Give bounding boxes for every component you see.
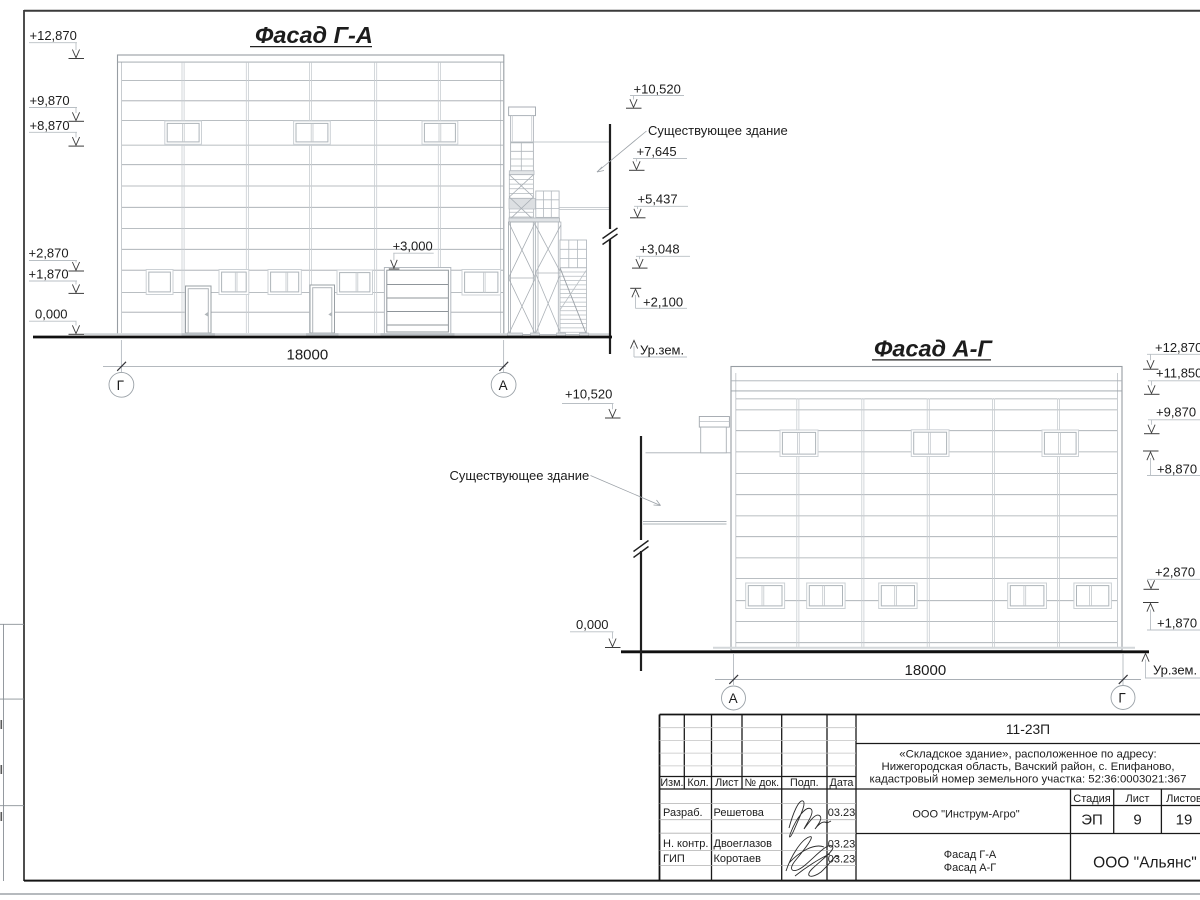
svg-text:+12,870: +12,870 [1155,340,1200,355]
svg-text:ООО "Инструм-Агро": ООО "Инструм-Агро" [912,809,1019,821]
svg-text:11-23П: 11-23П [1006,722,1050,737]
svg-text:18000: 18000 [905,662,947,679]
svg-text:Фасад Г-А: Фасад Г-А [944,849,997,861]
svg-text:+8,870: +8,870 [1157,461,1197,476]
svg-text:+9,870: +9,870 [30,93,70,108]
svg-text:0,000: 0,000 [35,306,68,321]
svg-text:Н. контр.: Н. контр. [663,838,708,850]
svg-text:Г: Г [1118,691,1126,706]
svg-text:+10,520: +10,520 [634,81,681,96]
svg-text:ЭП: ЭП [1081,812,1103,829]
svg-text:+2,870: +2,870 [29,246,69,261]
svg-text:+9,870: +9,870 [1156,404,1196,419]
svg-text:Существующее здание: Существующее здание [648,123,788,138]
svg-text:Подп.: Подп. [790,777,819,789]
svg-text:ГИП: ГИП [663,853,685,865]
svg-text:+3,000: +3,000 [393,239,433,254]
svg-text:Г: Г [117,378,125,393]
svg-text:03.23: 03.23 [828,839,856,851]
svg-text:+1,870: +1,870 [29,267,69,282]
svg-text:А: А [499,378,508,393]
svg-text:+10,520: +10,520 [565,386,612,401]
svg-text:№ док.: № док. [744,777,779,789]
svg-text:+8,870: +8,870 [30,118,70,133]
svg-text:Изм.: Изм. [660,777,683,789]
svg-text:03.23: 03.23 [828,807,856,819]
svg-text:Дата: Дата [830,777,854,789]
svg-text:+2,100: +2,100 [643,294,683,309]
svg-text:18000: 18000 [287,347,329,364]
svg-text:ООО "Альянс": ООО "Альянс" [1093,855,1197,872]
svg-text:Фасад А-Г: Фасад А-Г [874,335,993,361]
svg-text:Решетова: Решетова [714,807,765,819]
svg-text:Нижегородская область, Вачский: Нижегородская область, Вачский район, с.… [881,761,1174,773]
svg-text:Фасад А-Г: Фасад А-Г [944,862,997,874]
svg-text:+7,645: +7,645 [637,144,677,159]
svg-text:Разраб.: Разраб. [663,807,703,819]
svg-text:0,000: 0,000 [576,617,609,632]
svg-text:+1,870: +1,870 [1157,615,1197,630]
svg-text:Двоеглазов: Двоеглазов [714,838,773,850]
svg-text:9: 9 [1133,812,1141,829]
svg-text:+2,870: +2,870 [1155,564,1195,579]
svg-text:Ур.зем.: Ур.зем. [640,343,684,358]
svg-text:+3,048: +3,048 [640,242,680,257]
svg-text:Коротаев: Коротаев [714,853,762,865]
svg-text:+5,437: +5,437 [638,192,678,207]
svg-text:Лист: Лист [715,777,739,789]
svg-text:Фасад Г-А: Фасад Г-А [255,22,373,48]
svg-text:А: А [729,691,738,706]
svg-text:Лист: Лист [1126,793,1150,805]
svg-text:+12,870: +12,870 [30,28,77,43]
svg-text:Стадия: Стадия [1073,793,1111,805]
svg-text:03.23: 03.23 [828,854,856,866]
svg-text:Кол.: Кол. [687,777,708,789]
svg-text:«Складское здание», расположен: «Складское здание», расположенное по адр… [899,749,1156,761]
svg-text:Существующее здание: Существующее здание [450,468,590,483]
svg-text:+11,850: +11,850 [1156,365,1200,380]
svg-text:Листов: Листов [1166,793,1200,805]
svg-text:кадастровый номер земельного у: кадастровый номер земельного участка: 52… [870,774,1187,786]
svg-text:Ур.зем.: Ур.зем. [1153,662,1197,677]
svg-text:19: 19 [1176,812,1193,829]
